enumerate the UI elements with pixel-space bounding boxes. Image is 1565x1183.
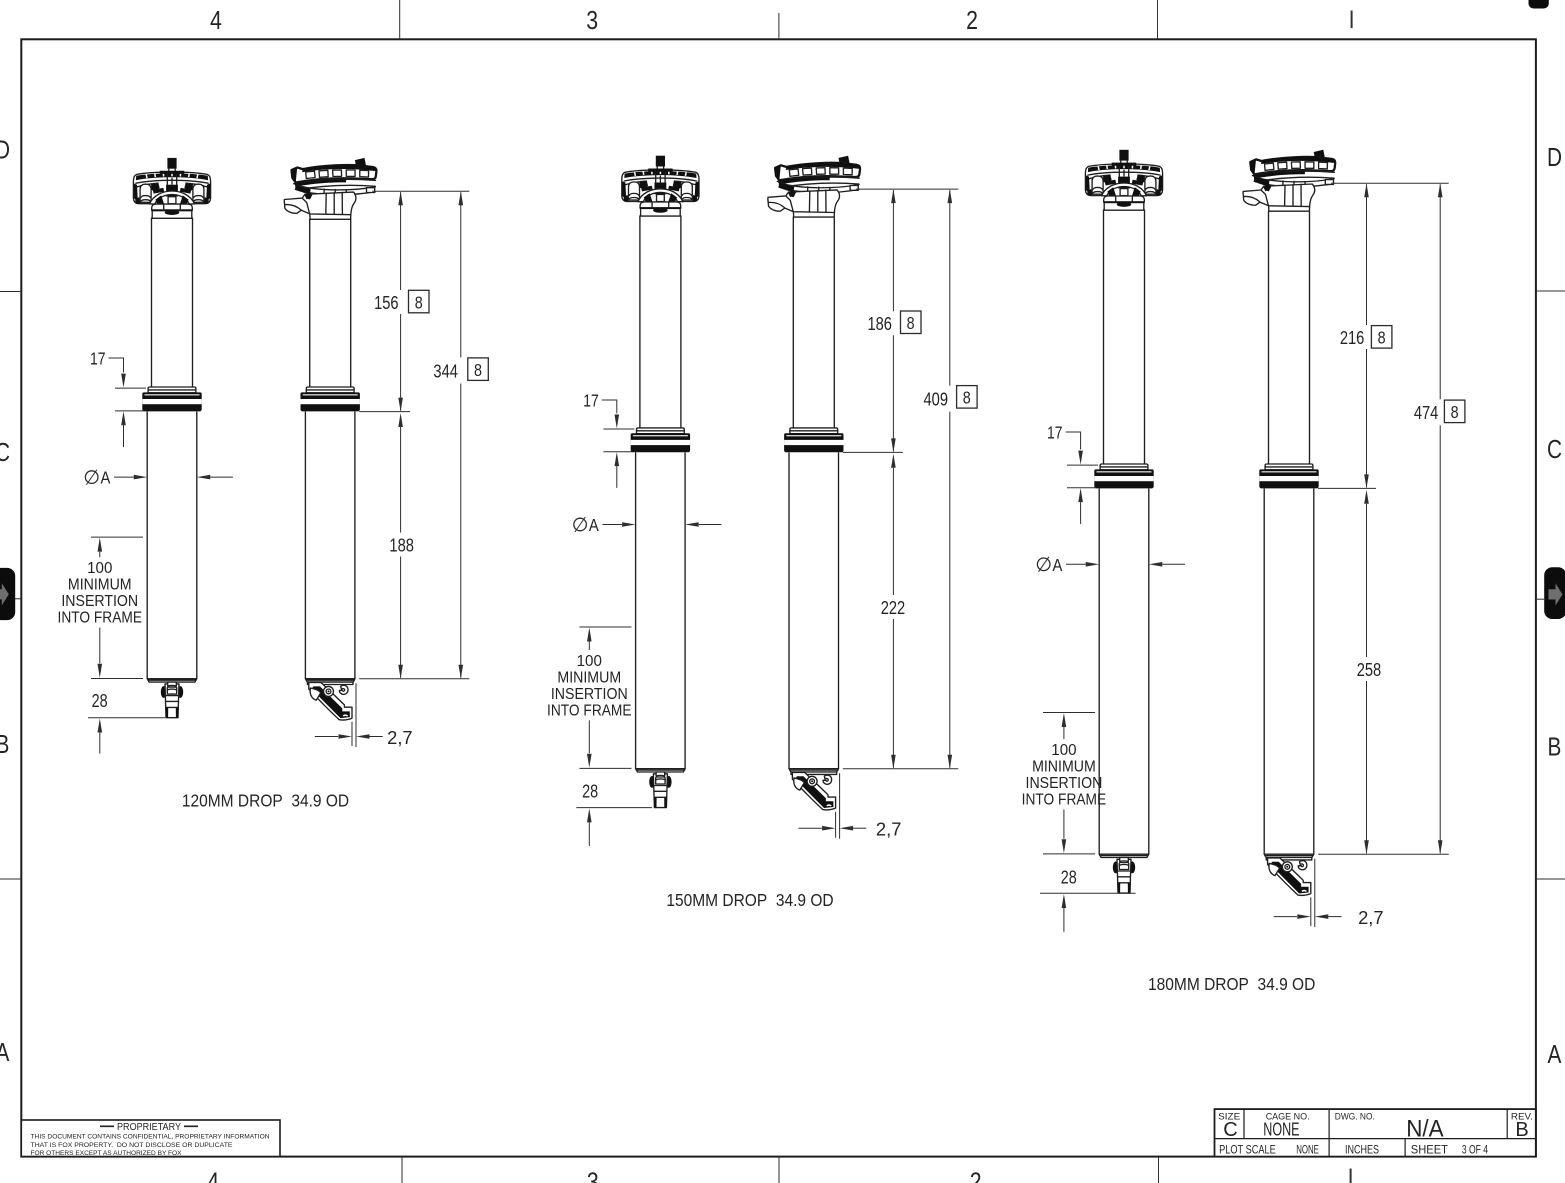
svg-text:17: 17 [583,391,599,411]
svg-text:MINIMUM: MINIMUM [557,669,621,687]
svg-text:188: 188 [389,535,413,556]
svg-text:INCHES: INCHES [1345,1142,1379,1156]
svg-text:3 OF 4: 3 OF 4 [1462,1142,1488,1156]
svg-text:NONE: NONE [1263,1120,1299,1140]
svg-text:2: 2 [966,6,978,36]
svg-text:156: 156 [374,292,398,313]
svg-text:FOR OTHERS EXCEPT AS AUTHORIZE: FOR OTHERS EXCEPT AS AUTHORIZED BY FOX [31,1150,182,1157]
svg-text:A: A [589,516,599,536]
svg-text:INTO FRAME: INTO FRAME [1022,791,1106,809]
svg-text:100: 100 [1051,742,1076,760]
svg-text:INSERTION: INSERTION [551,686,628,704]
svg-text:A: A [1548,1040,1562,1069]
svg-text:258: 258 [1357,659,1381,680]
svg-text:28: 28 [1061,867,1077,888]
svg-text:100: 100 [577,653,602,671]
svg-text:344: 344 [433,361,457,382]
svg-text:216: 216 [1340,327,1364,348]
svg-text:3: 3 [586,6,598,36]
svg-text:474: 474 [1414,403,1438,424]
svg-text:D: D [0,135,10,164]
svg-text:8: 8 [1451,404,1459,423]
svg-text:100: 100 [87,560,112,578]
svg-text:120MM DROP 34.9 OD: 120MM DROP 34.9 OD [182,792,349,811]
svg-text:PLOT SCALE: PLOT SCALE [1219,1142,1276,1156]
svg-text:28: 28 [92,690,108,711]
svg-text:180MM DROP 34.9 OD: 180MM DROP 34.9 OD [1148,976,1315,995]
svg-text:B: B [0,730,9,759]
svg-text:N/A: N/A [1406,1115,1443,1142]
svg-text:NONE: NONE [1296,1142,1319,1156]
svg-text:C: C [1547,435,1562,464]
svg-text:INSERTION: INSERTION [61,593,138,611]
svg-text:4: 4 [207,1168,219,1183]
svg-text:2: 2 [970,1168,982,1183]
svg-text:222: 222 [881,597,905,618]
svg-text:17: 17 [1047,423,1063,443]
svg-text:150MM DROP 34.9 OD: 150MM DROP 34.9 OD [666,892,833,911]
svg-text:THIS DOCUMENT CONTAINS CONFIDE: THIS DOCUMENT CONTAINS CONFIDENTIAL, PRO… [31,1134,270,1141]
svg-text:MINIMUM: MINIMUM [1032,758,1096,776]
svg-text:THAT IS FOX PROPERTY. DO NOT: THAT IS FOX PROPERTY. DO NOT DISCLOSE OR… [31,1142,233,1149]
svg-text:2,7: 2,7 [1358,907,1384,928]
svg-text:MINIMUM: MINIMUM [68,576,132,594]
svg-text:D: D [1547,143,1562,172]
svg-text:INTO FRAME: INTO FRAME [58,609,142,627]
svg-text:INSERTION: INSERTION [1026,775,1103,793]
svg-text:8: 8 [1378,329,1386,348]
svg-text:28: 28 [582,781,598,802]
svg-text:B: B [1548,732,1562,761]
svg-text:2,7: 2,7 [387,727,413,748]
svg-text:8: 8 [415,294,423,313]
svg-text:INTO FRAME: INTO FRAME [547,702,631,720]
svg-text:8: 8 [907,315,915,334]
svg-text:8: 8 [963,389,971,408]
svg-text:A: A [101,468,111,488]
svg-text:PROPRIETARY: PROPRIETARY [117,1122,181,1133]
svg-text:C: C [0,438,10,467]
svg-text:A: A [1052,555,1062,575]
svg-text:A: A [0,1038,10,1067]
svg-text:DWG. NO.: DWG. NO. [1335,1111,1375,1121]
svg-text:3: 3 [587,1168,599,1183]
svg-text:186: 186 [867,313,891,334]
svg-text:B: B [1515,1119,1528,1141]
svg-text:SHEET: SHEET [1411,1142,1449,1156]
svg-text:C: C [1223,1119,1237,1141]
svg-text:8: 8 [474,362,482,381]
svg-text:2,7: 2,7 [876,819,902,840]
svg-text:409: 409 [924,389,948,410]
svg-text:17: 17 [90,349,106,369]
svg-text:4: 4 [210,6,222,36]
